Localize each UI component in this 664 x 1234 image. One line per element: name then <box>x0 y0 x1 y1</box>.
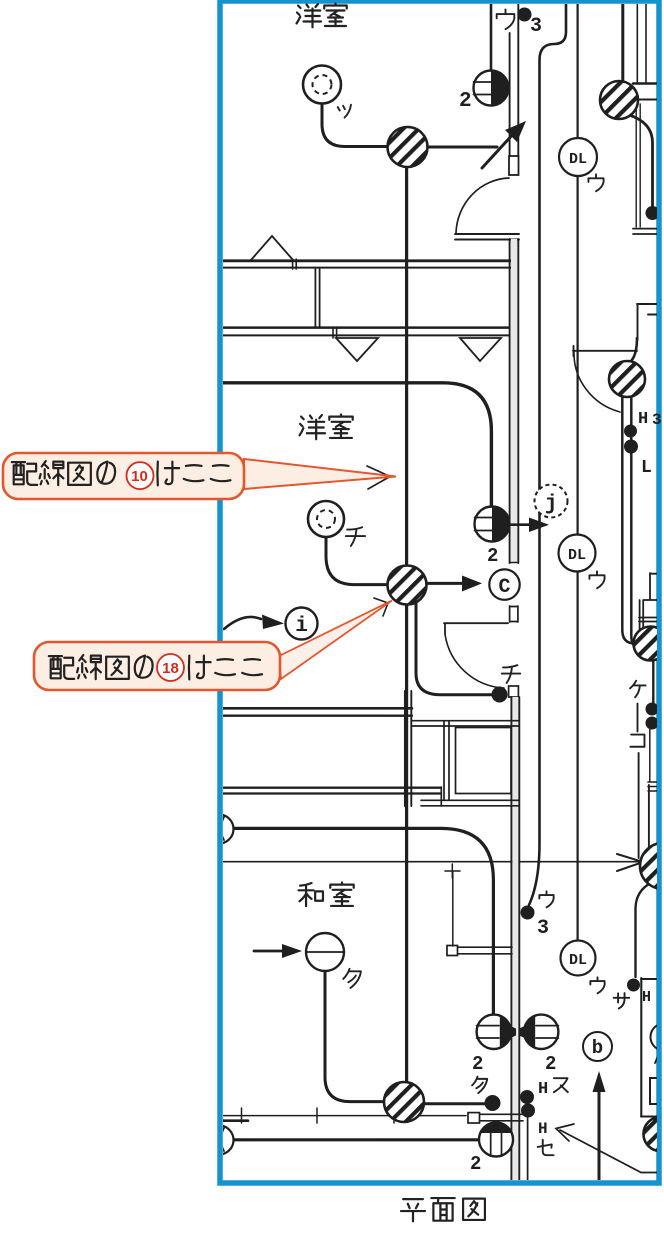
svg-text:3: 3 <box>652 411 662 429</box>
svg-text:DL: DL <box>569 151 587 168</box>
svg-text:2: 2 <box>470 1153 481 1175</box>
svg-text:3: 3 <box>537 917 549 940</box>
svg-text:i: i <box>295 615 308 638</box>
svg-text:C: C <box>498 576 510 599</box>
svg-text:H: H <box>642 989 651 1006</box>
svg-text:3: 3 <box>530 15 542 38</box>
svg-text:b: b <box>592 1037 603 1059</box>
svg-text:18: 18 <box>162 660 179 677</box>
svg-text:10: 10 <box>131 468 148 485</box>
svg-text:2: 2 <box>545 1053 556 1075</box>
svg-text:L: L <box>641 458 652 478</box>
svg-text:2: 2 <box>472 1053 483 1075</box>
svg-text:H: H <box>538 1120 548 1138</box>
svg-text:j: j <box>545 493 558 516</box>
svg-text:2: 2 <box>487 545 498 567</box>
svg-text:DL: DL <box>568 547 586 564</box>
svg-text:DL: DL <box>569 952 587 969</box>
svg-text:2: 2 <box>459 90 472 113</box>
svg-text:H: H <box>538 1080 548 1099</box>
svg-text:H: H <box>638 410 648 429</box>
